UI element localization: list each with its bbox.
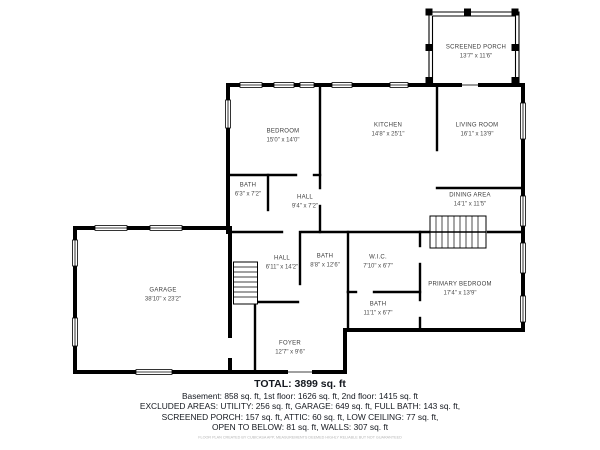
- floors-area-text: Basement: 858 sq. ft, 1st floor: 1626 sq…: [0, 391, 600, 401]
- room-label-primary-bedroom: PRIMARY BEDROOM 17'4" x 13'9": [428, 281, 492, 300]
- room-label-kitchen: KITCHEN 14'8" x 25'1": [372, 122, 405, 141]
- total-area-text: TOTAL: 3899 sq. ft: [0, 378, 600, 390]
- room-label-screened-porch: SCREENED PORCH 13'7" x 11'6": [446, 44, 506, 63]
- stairs-upper-icon: [430, 216, 486, 248]
- room-label-foyer: FOYER 12'7" x 9'6": [275, 340, 305, 359]
- excluded-areas-line1: EXCLUDED AREAS: UTILITY: 256 sq. ft, GAR…: [0, 401, 600, 411]
- room-label-garage: GARAGE 38'10" x 23'2": [145, 287, 181, 306]
- floorplan-drawing: [0, 0, 600, 376]
- room-label-wic: W.I.C. 7'10" x 6'7": [363, 254, 393, 273]
- excluded-areas-line2: SCREENED PORCH: 157 sq. ft, ATTIC: 60 sq…: [0, 412, 600, 422]
- room-label-living-room: LIVING ROOM 16'1" x 13'9": [456, 122, 499, 141]
- room-label-hall-upper: HALL 9'4" x 7'2": [292, 194, 318, 213]
- room-label-bath-upper: BATH 6'3" x 7'2": [235, 182, 261, 201]
- stairs-lower-icon: [234, 262, 258, 304]
- floorplan-page: SCREENED PORCH 13'7" x 11'6" BEDROOM 15'…: [0, 0, 600, 450]
- room-label-hall-lower: HALL 6'11" x 14'2": [266, 255, 298, 274]
- area-summary: TOTAL: 3899 sq. ft Basement: 858 sq. ft,…: [0, 378, 600, 442]
- room-label-bedroom: BEDROOM 15'0" x 14'0": [267, 128, 300, 147]
- room-label-bath-middle: BATH 8'8" x 12'6": [310, 253, 340, 272]
- disclaimer-text: FLOOR PLAN CREATED BY CUBICASA APP, MEAS…: [114, 436, 486, 440]
- room-label-dining-area: DINING AREA 14'1" x 11'5": [449, 192, 490, 211]
- room-label-bath-lower: BATH 11'1" x 6'7": [363, 301, 392, 320]
- excluded-areas-line3: OPEN TO BELOW: 81 sq. ft, WALLS: 307 sq.…: [0, 422, 600, 432]
